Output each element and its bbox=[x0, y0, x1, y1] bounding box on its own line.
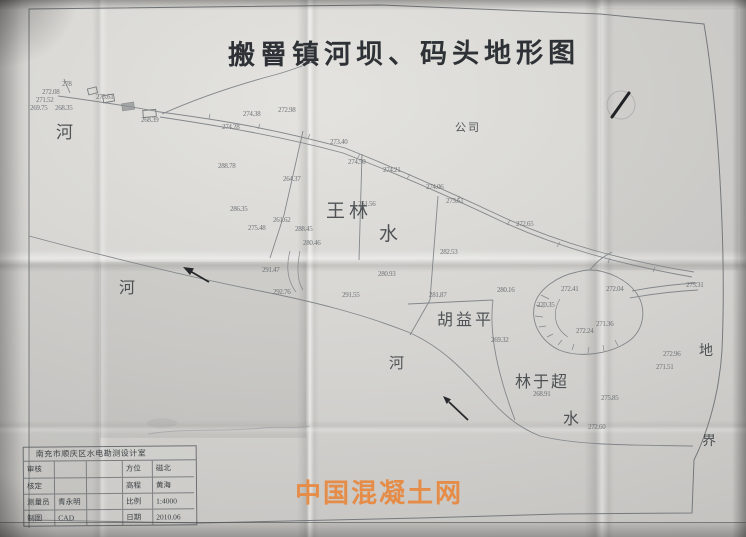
spot-elevation: 288.78 bbox=[218, 162, 235, 170]
parcel-line bbox=[410, 196, 438, 335]
photographed-map-sheet: 搬罾镇河坝、码头地形图 河 河 河 公司 王林 水 胡益平 林于超 水 地 界 … bbox=[0, 0, 746, 537]
spot-elevation: 270.35 bbox=[537, 301, 554, 309]
title-block-cell: 比例 bbox=[122, 493, 152, 509]
title-block-cell: 高程 bbox=[122, 477, 152, 493]
spot-elevation: 278 bbox=[62, 80, 72, 88]
spot-elevation: 272.41 bbox=[561, 285, 578, 293]
spot-elevation: 271.52 bbox=[36, 96, 53, 104]
pond-inner-contour bbox=[555, 299, 568, 337]
flow-arrow bbox=[443, 396, 468, 420]
road-line bbox=[160, 117, 692, 277]
map-title: 搬罾镇河坝、码头地形图 bbox=[228, 31, 538, 72]
spot-elevation: 280.16 bbox=[497, 286, 514, 294]
photo-edge bbox=[0, 522, 746, 537]
spot-elevation: 275.48 bbox=[248, 224, 265, 232]
spot-elevation: 268.35 bbox=[55, 104, 72, 112]
spot-elevation: 275.85 bbox=[601, 394, 618, 402]
label-water: 水 bbox=[379, 219, 398, 246]
spot-elevation: 274.50 bbox=[348, 158, 365, 166]
north-arrow bbox=[607, 91, 635, 119]
flow-arrow bbox=[183, 267, 209, 282]
spot-elevation: 251.56 bbox=[358, 200, 375, 208]
spot-elevation: 272.65 bbox=[516, 220, 533, 228]
spot-elevation: 274.28 bbox=[222, 123, 239, 131]
spot-elevation: 291.55 bbox=[342, 291, 359, 299]
spot-elevation: 274.06 bbox=[426, 183, 443, 191]
label-river: 河 bbox=[56, 118, 73, 143]
spot-elevation: 292.76 bbox=[273, 288, 290, 296]
spot-elevation: 273.40 bbox=[330, 138, 347, 146]
spot-elevation: 280.46 bbox=[303, 239, 320, 247]
title-block-cell: 磁北 bbox=[152, 460, 194, 476]
spot-elevation: 282.53 bbox=[440, 248, 457, 256]
spot-elevation: 273.61 bbox=[446, 197, 463, 205]
photo-corner-shadow bbox=[0, 470, 60, 537]
spot-elevation: 272.08 bbox=[42, 88, 59, 96]
pencil-scribble bbox=[147, 418, 310, 434]
spot-elevation: 272.96 bbox=[663, 350, 680, 358]
spot-elevation: 271.51 bbox=[656, 363, 673, 371]
spot-elevation: 286.35 bbox=[230, 205, 247, 213]
title-block-cell: 黄海 bbox=[152, 476, 194, 492]
spot-elevation: 291.47 bbox=[262, 266, 279, 274]
spot-elevation: 274.21 bbox=[383, 166, 400, 174]
spot-elevation: 269.32 bbox=[491, 336, 508, 344]
river-bank bbox=[29, 236, 693, 446]
label-water: 水 bbox=[563, 405, 579, 429]
spot-elevation: 272.98 bbox=[278, 106, 295, 114]
spot-elevation: 288.45 bbox=[295, 225, 312, 233]
label-boundary-jie: 界 bbox=[702, 430, 716, 450]
spot-elevation: 272.24 bbox=[576, 327, 593, 335]
title-block-office: 南充市顺庆区水电勘测设计室 bbox=[24, 446, 196, 462]
spot-elevation: 281.87 bbox=[429, 291, 446, 299]
photo-edge bbox=[0, 0, 30, 537]
pond-outline bbox=[534, 270, 643, 354]
spot-elevation: 272.04 bbox=[606, 285, 623, 293]
spot-elevation: 275.31 bbox=[686, 281, 703, 289]
spot-elevation: 274.38 bbox=[243, 110, 260, 118]
watermark: 中国混凝土网 bbox=[295, 473, 463, 510]
spot-elevation: 269.75 bbox=[30, 104, 47, 112]
label-river: 河 bbox=[119, 274, 135, 298]
road-line bbox=[160, 112, 694, 272]
photo-edge bbox=[732, 0, 746, 537]
spot-elevation: 271.36 bbox=[596, 320, 613, 328]
title-block-cell: 方位 bbox=[122, 461, 152, 477]
spot-elevation: 275.61 bbox=[96, 93, 113, 101]
parcel-line bbox=[270, 131, 303, 258]
photo-edge bbox=[0, 0, 746, 10]
label-company: 公司 bbox=[455, 119, 481, 135]
label-owner-huyiping: 胡益平 bbox=[437, 306, 494, 330]
label-owner-linyuchao: 林于超 bbox=[515, 368, 569, 392]
spot-elevation: 268.39 bbox=[141, 116, 158, 124]
gully bbox=[288, 251, 303, 292]
spot-elevation: 268.91 bbox=[533, 390, 550, 398]
spot-elevation: 264.37 bbox=[283, 175, 300, 183]
title-block-cell bbox=[86, 493, 122, 509]
building-outline bbox=[87, 87, 156, 118]
spot-elevation: 280.93 bbox=[378, 270, 395, 278]
title-block-cell: 1:4000 bbox=[152, 492, 194, 508]
spot-elevation: 261.62 bbox=[273, 216, 290, 224]
title-block-cell bbox=[86, 477, 122, 493]
label-river: 河 bbox=[389, 352, 404, 373]
spot-elevation: 272.60 bbox=[588, 423, 605, 431]
label-boundary-di: 地 bbox=[699, 340, 713, 360]
parcel-line bbox=[408, 300, 493, 304]
title-block-cell bbox=[86, 461, 122, 477]
parcel-line bbox=[492, 300, 515, 420]
photo-corner-shadow bbox=[0, 0, 80, 70]
